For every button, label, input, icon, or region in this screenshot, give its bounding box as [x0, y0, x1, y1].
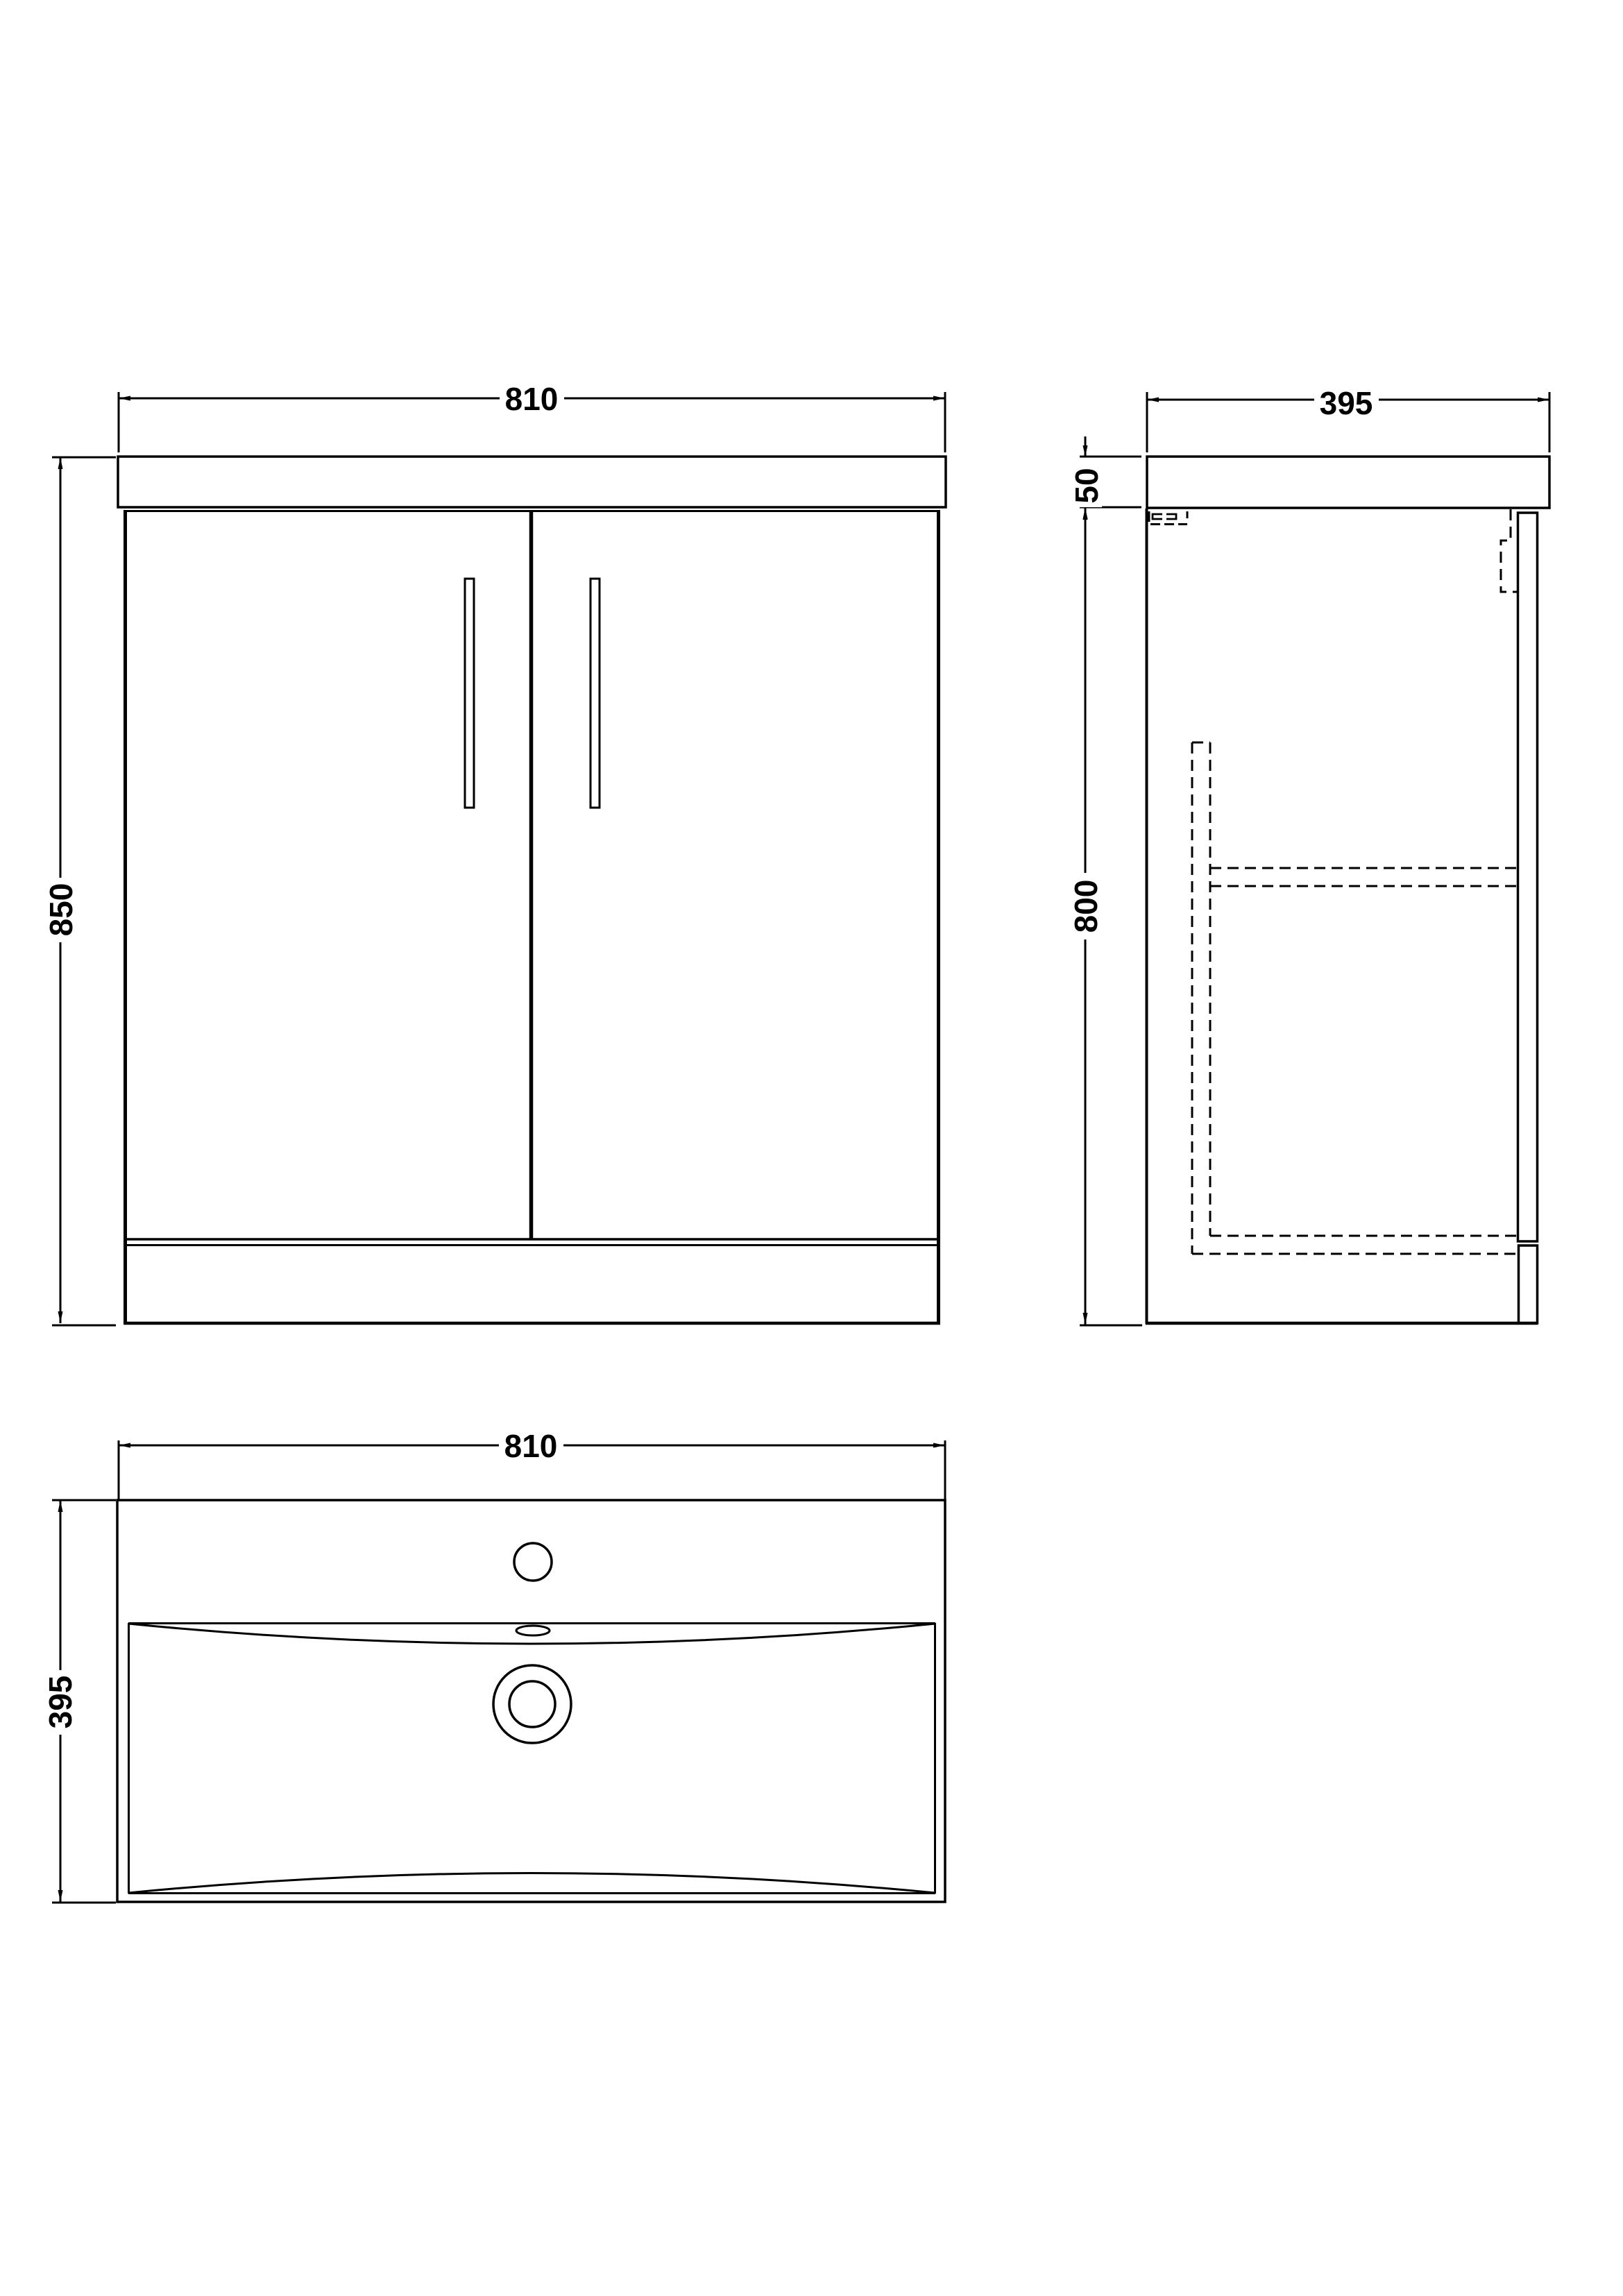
svg-text:800: 800 — [1068, 880, 1104, 933]
svg-text:395: 395 — [1320, 385, 1373, 421]
svg-text:810: 810 — [505, 381, 559, 417]
svg-text:850: 850 — [43, 883, 79, 937]
svg-text:395: 395 — [42, 1676, 78, 1729]
svg-text:50: 50 — [1069, 468, 1105, 503]
svg-text:810: 810 — [504, 1428, 558, 1464]
